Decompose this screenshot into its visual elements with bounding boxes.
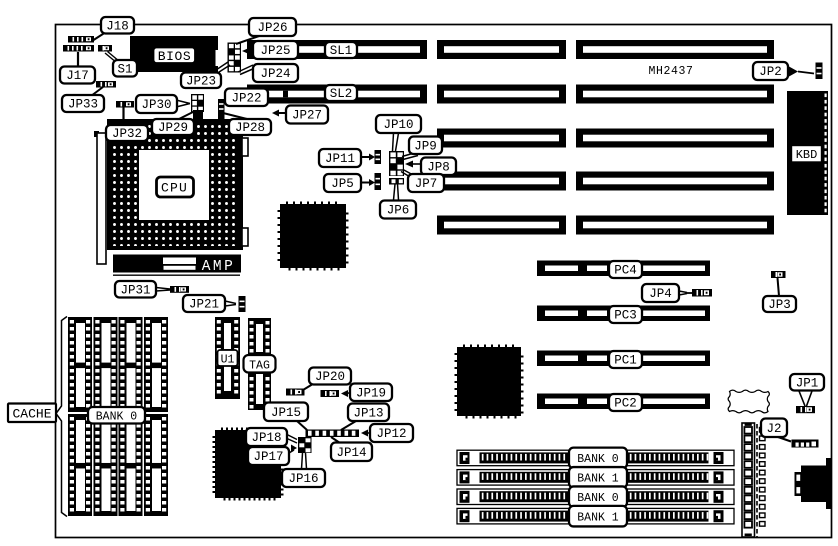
svg-text:PC4: PC4 — [614, 264, 637, 278]
svg-text:CPU: CPU — [161, 181, 188, 196]
svg-text:JP29: JP29 — [158, 121, 188, 135]
svg-text:JP5: JP5 — [331, 177, 354, 191]
svg-text:JP4: JP4 — [649, 287, 672, 301]
svg-text:JP26: JP26 — [257, 21, 287, 35]
svg-text:J17: J17 — [66, 69, 89, 83]
svg-text:JP27: JP27 — [292, 109, 322, 123]
svg-text:JP21: JP21 — [189, 298, 219, 312]
svg-text:JP3: JP3 — [768, 298, 791, 312]
svg-text:JP19: JP19 — [356, 386, 386, 400]
svg-text:JP24: JP24 — [260, 67, 290, 81]
svg-text:JP32: JP32 — [112, 127, 142, 141]
svg-text:S1: S1 — [117, 62, 132, 76]
svg-text:JP1: JP1 — [796, 376, 819, 390]
svg-text:JP14: JP14 — [336, 446, 366, 460]
svg-text:KBD: KBD — [796, 148, 818, 162]
svg-text:JP17: JP17 — [253, 450, 283, 464]
svg-text:JP12: JP12 — [376, 427, 406, 441]
svg-text:U1: U1 — [221, 354, 235, 367]
svg-text:JP2: JP2 — [759, 65, 782, 79]
svg-text:J18: J18 — [106, 19, 129, 33]
svg-text:J2: J2 — [766, 422, 781, 436]
svg-text:CACHE: CACHE — [12, 407, 51, 422]
svg-text:JP8: JP8 — [427, 160, 450, 174]
svg-text:PC1: PC1 — [614, 354, 637, 368]
svg-text:BANK 1: BANK 1 — [577, 473, 619, 486]
svg-text:JP7: JP7 — [415, 177, 438, 191]
svg-text:BANK 0: BANK 0 — [577, 453, 619, 466]
svg-text:BANK 0: BANK 0 — [96, 410, 138, 423]
svg-text:JP22: JP22 — [231, 91, 261, 105]
svg-text:JP20: JP20 — [315, 370, 345, 384]
svg-text:JP25: JP25 — [260, 44, 290, 58]
svg-text:BANK 0: BANK 0 — [577, 492, 619, 505]
svg-text:SL1: SL1 — [330, 44, 353, 58]
svg-text:JP33: JP33 — [68, 98, 98, 112]
svg-text:MH2437: MH2437 — [648, 65, 693, 78]
svg-text:JP23: JP23 — [186, 74, 216, 88]
svg-text:JP31: JP31 — [120, 283, 150, 297]
svg-text:AMP: AMP — [202, 259, 236, 275]
svg-text:BIOS: BIOS — [158, 49, 192, 64]
svg-text:JP18: JP18 — [251, 431, 281, 445]
svg-text:JP6: JP6 — [387, 204, 410, 218]
svg-text:JP16: JP16 — [288, 472, 318, 486]
svg-text:JP11: JP11 — [325, 152, 355, 166]
svg-text:JP13: JP13 — [353, 406, 383, 420]
svg-text:JP9: JP9 — [414, 139, 437, 153]
svg-text:PC2: PC2 — [614, 397, 637, 411]
svg-text:JP15: JP15 — [271, 406, 301, 420]
svg-text:SL2: SL2 — [330, 87, 353, 101]
svg-text:PC3: PC3 — [614, 309, 637, 323]
svg-text:JP10: JP10 — [383, 118, 413, 132]
svg-text:TAG: TAG — [249, 360, 270, 373]
svg-text:JP30: JP30 — [141, 98, 171, 112]
svg-text:JP28: JP28 — [235, 121, 265, 135]
svg-text:BANK 1: BANK 1 — [577, 511, 619, 524]
